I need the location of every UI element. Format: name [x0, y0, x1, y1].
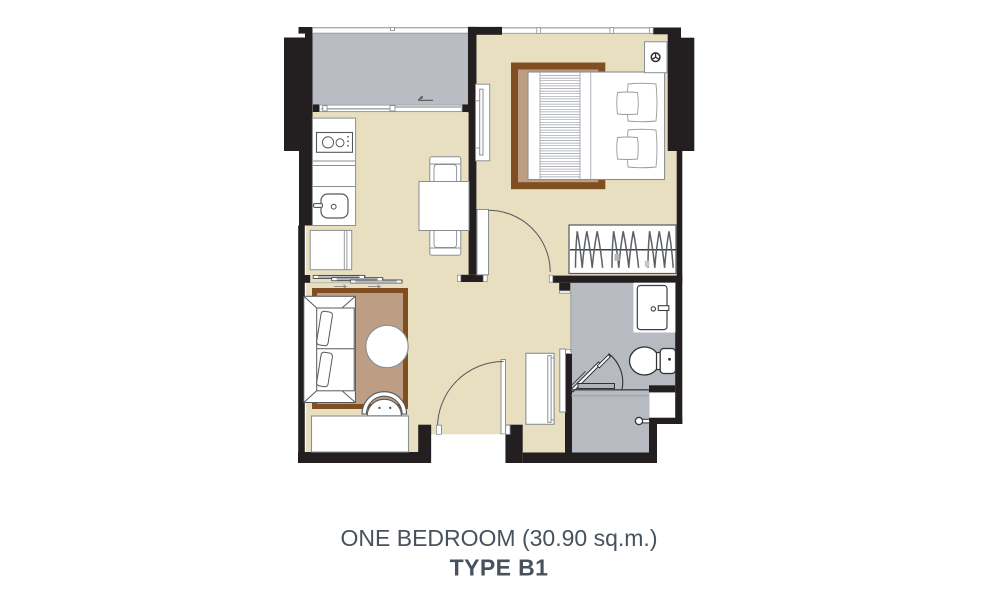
svg-text:ONE BEDROOM (30.90 sq.m.): ONE BEDROOM (30.90 sq.m.): [341, 525, 658, 551]
svg-text:TYPE B1: TYPE B1: [450, 555, 549, 581]
